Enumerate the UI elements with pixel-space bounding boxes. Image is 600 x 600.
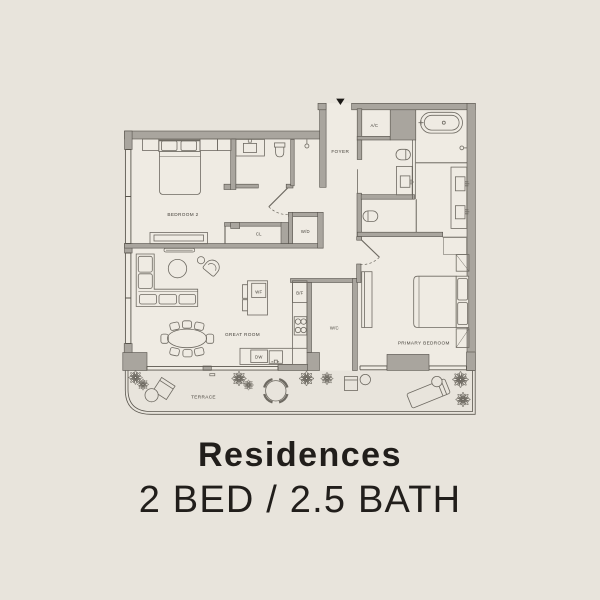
svg-text:W/D: W/D <box>301 229 310 234</box>
svg-text:BEDROOM 2: BEDROOM 2 <box>167 212 198 217</box>
svg-text:W/C: W/C <box>330 326 339 331</box>
svg-text:FOYER: FOYER <box>331 149 349 154</box>
svg-text:GREAT ROOM: GREAT ROOM <box>225 332 260 337</box>
svg-text:A/C: A/C <box>370 123 378 128</box>
svg-text:WF: WF <box>255 289 262 294</box>
svg-text:TERRACE: TERRACE <box>191 394 216 399</box>
svg-text:DW: DW <box>255 355 262 360</box>
svg-text:PRIMARY BEDROOM: PRIMARY BEDROOM <box>398 341 450 346</box>
svg-text:B/F: B/F <box>296 290 303 295</box>
svg-text:CL: CL <box>256 231 262 236</box>
